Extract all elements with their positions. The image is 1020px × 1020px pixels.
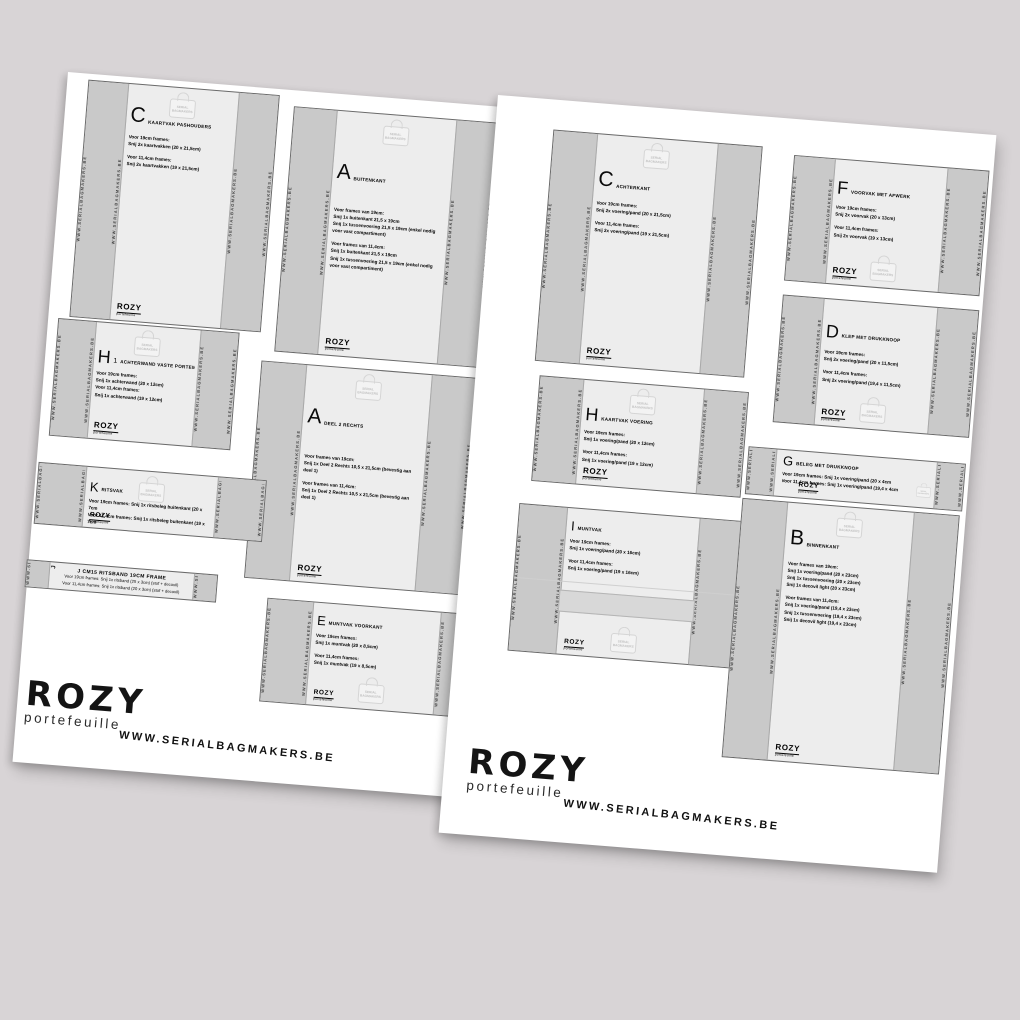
seam-column: WWW.SERIALBAGMAKERS.BEWWW.SERIALBAGMAKER… (192, 330, 239, 449)
pattern-piece-h1: WWW.SERIALBAGMAKERS.BEWWW.SERIALBAGMAKER… (49, 318, 240, 450)
piece-title: Binnenkant (806, 542, 839, 552)
edge-text: WWW.SERIALBAGMAKERS.BE (193, 576, 199, 599)
edge-text: WWW.SERIALBAGMAKERS.BE (444, 199, 455, 285)
piece-letter: H (585, 406, 599, 423)
pattern-piece-k: WWW.SERIALBAGMAKERS.BEWWW.SERIALBAGMAKER… (34, 462, 267, 542)
piece-letter: K (90, 481, 100, 493)
piece-content: BBinnenkant Voor frames van 19cm: Snij 1… (772, 503, 909, 770)
edge-text: WWW.SERIALBAGMAKERS.BE (261, 607, 272, 693)
rozy-mini-logo: ROZYportefeuille (297, 564, 323, 579)
cut-instructions: Voor frames van 19cm: Snij 1x Deel 2 Rec… (303, 452, 420, 483)
edge-text: WWW.SERIALBAGMAKERS.BE (227, 168, 238, 254)
edge-text: WWW.SERIALBAGMAKERS.BE (940, 187, 951, 273)
seam-column: WWW.SERIALBAGMAKERS.BEWWW.SERIALBAGMAKER… (50, 319, 97, 438)
cut-instructions: Voor 19cm frames: Snij 1x voering/pand (… (569, 537, 693, 561)
rozy-mini-logo: ROZYportefeuille (313, 690, 334, 703)
seam-column: WWW.SERIALBAGMAKERS.BEWWW.SERIALBAGMAKER… (785, 156, 836, 283)
piece-letter: G (783, 455, 794, 467)
edge-text: WWW.SERIALBAGMAKERS.BE (542, 202, 553, 288)
seam-column: WWW.SERIALBAGMAKERS.BEWWW.SERIALBAGMAKER… (696, 389, 748, 496)
seam-column: WWW.SERIALBAGMAKERS.BEWWW.SERIALBAGMAKER… (35, 463, 87, 527)
edge-text: WWW.SERIALBAGMAKERS.BE (941, 602, 952, 688)
edge-text: WWW.SERIALBAGMAKERS.BE (930, 328, 941, 414)
piece-letter-sub: 1 (113, 358, 118, 366)
pattern-piece-h-right: WWW.SERIALBAGMAKERS.BEWWW.SERIALBAGMAKER… (531, 375, 749, 498)
pattern-piece-a2: WWW.SERIALBAGMAKERS.BEWWW.SERIALBAGMAKER… (244, 360, 478, 595)
seam-column: WWW.SERIALBAGMAKERS.BEWWW.SERIALBAGMAKER… (933, 462, 965, 510)
edge-text: WWW.SERIALBAGMAKERS.BE (262, 170, 273, 256)
pattern-piece-f: WWW.SERIALBAGMAKERS.BEWWW.SERIALBAGMAKER… (784, 155, 989, 296)
cut-instructions: Voor 19cm frames: Snij 1x achterwand (20… (94, 369, 193, 405)
pattern-piece-i: WWW.SERIALBAGMAKERS.BEWWW.SERIALBAGMAKER… (507, 503, 748, 669)
rozy-mini-logo: ROZYportefeuille (821, 408, 847, 423)
edge-text: WWW.SERIALBAGMAKERS.BE (706, 216, 717, 302)
edge-text: WWW.SERIALBAGMAKERS.BE (976, 190, 987, 276)
piece-letter: C (130, 106, 147, 126)
edge-text: WWW.SERIALBAGMAKERS.BE (215, 482, 223, 534)
edge-text: WWW.SERIALBAGMAKERS.BE (966, 331, 977, 417)
edge-text: WWW.SERIALBAGMAKERS.BE (78, 471, 86, 523)
edge-text: WWW.SERIALBAGMAKERS.BE (770, 588, 781, 674)
edge-text: WWW.SERIALBAGMAKERS.BE (745, 219, 756, 305)
rozy-mini-logo: ROZYportefeuille (586, 347, 612, 362)
cut-instructions: Voor 11,4cm frames: Snij 1x muntvak (19 … (314, 652, 433, 676)
seam-column: WWW.SERIALBAGMAKERS.BEWWW.SERIALBAGMAKER… (746, 447, 778, 495)
piece-content: ABuitenkant Voor frames van 19cm: Snij 1… (322, 111, 452, 363)
photo-of-pattern-sheets: WWW.SERIALBAGMAKERS.BEWWW.SERIALBAGMAKER… (0, 0, 1020, 1020)
rozy-logo: ROZY portefeuille (24, 677, 148, 734)
cut-instructions: Voor 19cm frames: Snij 2x voering/pand (… (596, 199, 709, 222)
edge-text: WWW.SERIALBAGMAKERS.BE (769, 452, 776, 492)
cut-instructions: Voor 11,4cm frames: Snij 1x voering/pand… (567, 557, 691, 581)
edge-text: WWW.SERIALBAGMAKERS.BE (76, 155, 87, 241)
piece-title: Voorvak met afwerk (851, 190, 911, 202)
rozy-mini-logo: ROZYportefeuille (89, 512, 110, 525)
seam-column: WWW.SERIALBAGMAKERS.BE (192, 574, 217, 602)
piece-letter: F (837, 180, 849, 197)
edge-text: WWW.SERIALBAGMAKERS.BE (787, 175, 798, 261)
rozy-mini-logo: ROZYportefeuille (582, 467, 608, 482)
piece-content: GBeleg met drukknoop Voor 19cm frames: S… (780, 450, 932, 508)
piece-letter: D (825, 323, 839, 340)
cut-instructions: Voor frames van 11,4cm: Snij 1x Deel 2 R… (301, 479, 418, 510)
edge-text: WWW.SERIALBAGMAKERS.BE (194, 345, 205, 431)
piece-content: CAchterkant Voor 19cm frames: Snij 2x vo… (584, 134, 714, 372)
rozy-mini-logo: ROZYportefeuille (832, 267, 858, 282)
cut-instructions: Voor frames van 19cm: Snij 1x voering/pa… (786, 560, 905, 598)
rozy-mini-logo: ROZYportefeuille (798, 482, 819, 495)
edge-text: WWW.SERIALBAGMAKERS.BE (434, 621, 445, 707)
cut-instructions: Voor 19cm frames: Snij 1x muntvak (20 x … (315, 631, 434, 655)
pattern-piece-a: WWW.SERIALBAGMAKERS.BEWWW.SERIALBAGMAKER… (274, 106, 500, 368)
cut-instructions: Voor 19cm frames: Snij 2x voering/pand (… (823, 348, 929, 371)
edge-text: WWW.SERIALBAGMAKERS.BE (533, 385, 544, 471)
seam-column: WWW.SERIALBAGMAKERS.BEWWW.SERIALBAGMAKER… (938, 168, 989, 295)
rozy-mini-logo: ROZYportefeuille (93, 422, 119, 437)
rozy-mini-logo: ROZYportefeuille (325, 338, 351, 353)
edge-text: WWW.SERIALBAGMAKERS.BE (746, 451, 753, 491)
piece-content: J CM15 RITSBAND 19CM FRAME Voor 19cm fra… (52, 562, 190, 599)
edge-text: WWW.SERIALBAGMAKERS.BE (421, 440, 432, 526)
seam-column: WWW.SERIALBAGMAKERS.BEWWW.SERIALBAGMAKER… (927, 308, 978, 437)
piece-letter: I (571, 520, 576, 532)
edge-text: WWW.SERIALBAGMAKERS.BE (226, 348, 237, 434)
rozy-mini-logo: ROZYportefeuille (563, 639, 584, 652)
piece-title: Muntvak voorkant (328, 620, 383, 631)
piece-title: Buitenkant (353, 176, 386, 186)
piece-content: CKaartvak pashouders Voor 19cm frames: S… (114, 84, 235, 327)
edge-text: WWW.SERIALBAGMAKERS.BE (26, 562, 32, 585)
piece-letter: C (598, 170, 615, 190)
piece-letter: A (307, 407, 322, 427)
website-url: WWW.SERIALBAGMAKERS.BE (563, 798, 780, 833)
cut-instructions: Voor 11,4cm frames: Snij 2x kaartvakken … (126, 153, 229, 175)
rozy-mini-logo: ROZYportefeuille (775, 744, 801, 759)
cut-instructions: Voor 19cm frames: Snij 2x kaartvakken (2… (128, 133, 231, 155)
cut-instructions: Voor frames van 11,4cm: Snij 1x voering/… (783, 594, 902, 632)
piece-letter: E (317, 615, 327, 627)
piece-letter: A (336, 163, 351, 183)
cut-instructions: Voor 19cm frames: Snij 1x voering/pand (… (583, 428, 696, 451)
seam-column: WWW.SERIALBAGMAKERS.BEWWW.SERIALBAGMAKER… (532, 376, 584, 483)
rozy-mini-logo: ROZYportefeuille (116, 303, 142, 318)
cut-instructions: Voor 11,4cm frames: Snij 2x voorvak (19 … (833, 224, 939, 247)
piece-title: Achterkant (616, 184, 651, 194)
cut-instructions: Voor frames van 19cm: Snij 1x buitenkant… (332, 206, 445, 243)
pattern-piece-b: WWW.SERIALBAGMAKERS.BEWWW.SERIALBAGMAKER… (722, 498, 960, 775)
pattern-piece-d: WWW.SERIALBAGMAKERS.BEWWW.SERIALBAGMAKER… (773, 294, 980, 437)
edge-text: WWW.SERIALBAGMAKERS.BE (302, 610, 313, 696)
cut-instructions: Voor 19cm frames: Snij 2x voorvak (20 x … (835, 204, 941, 227)
piece-letter: B (789, 529, 804, 549)
edge-text: WWW.SERIALBAGMAKERS.BE (51, 334, 62, 420)
pattern-piece-j-strip: WWW.SERIALBAGMAKERS.BE WWW.SERIALBAGMAKE… (25, 559, 219, 602)
pattern-sheet-right: WWW.SERIALBAGMAKERS.BEWWW.SERIALBAGMAKER… (439, 95, 997, 873)
piece-letter: H (97, 348, 111, 365)
piece-title: Klep met drukknoop (841, 334, 900, 346)
piece-title: Ritsvak (101, 487, 123, 496)
cut-instructions: Voor 11,4cm frames: Snij 2x voering/pand… (594, 219, 707, 242)
edge-text: WWW.SERIALBAGMAKERS.BE (901, 598, 912, 684)
edge-text: WWW.SERIALBAGMAKERS.BE (698, 398, 709, 484)
website-url: WWW.SERIALBAGMAKERS.BE (118, 729, 335, 764)
edge-text: WWW.SERIALBAGMAKERS.BE (957, 468, 964, 508)
piece-content: KRitsvak Voor 19cm frames: Snij 1x ritsb… (87, 467, 214, 537)
cut-instructions: Voor frames van 11,4cm: Snij 1x buitenka… (329, 240, 442, 277)
seam-column: WWW.SERIALBAGMAKERS.BEWWW.SERIALBAGMAKER… (774, 296, 825, 425)
piece-title: Kaartvak pashouders (148, 119, 212, 131)
pattern-piece-c-left: WWW.SERIALBAGMAKERS.BEWWW.SERIALBAGMAKER… (69, 80, 279, 333)
piece-title: Deel 2 rechts (324, 421, 364, 431)
edge-text: WWW.SERIALBAGMAKERS.BE (282, 186, 293, 272)
cut-instructions: Voor 11,4cm frames: Snij 2x voering/pand… (822, 368, 928, 391)
piece-title: Kaartvak voering (601, 417, 653, 428)
piece-title: Muntvak (577, 525, 602, 534)
seam-column: WWW.SERIALBAGMAKERS.BE (26, 560, 51, 588)
edge-text: WWW.SERIALBAGMAKERS.BE (934, 466, 941, 506)
edge-text: WWW.SERIALBAGMAKERS.BE (775, 315, 786, 401)
piece-content: ADeel 2 rechts Voor frames van 19cm: Sni… (294, 365, 427, 590)
rozy-logo: ROZY portefeuille (466, 745, 590, 802)
seam-column: WWW.SERIALBAGMAKERS.BEWWW.SERIALBAGMAKER… (260, 599, 314, 704)
edge-text: WWW.SERIALBAGMAKERS.BE (35, 467, 43, 519)
seam-column: WWW.SERIALBAGMAKERS.BEWWW.SERIALBAGMAKER… (214, 477, 266, 541)
pattern-piece-c-right: WWW.SERIALBAGMAKERS.BEWWW.SERIALBAGMAKER… (535, 130, 763, 378)
